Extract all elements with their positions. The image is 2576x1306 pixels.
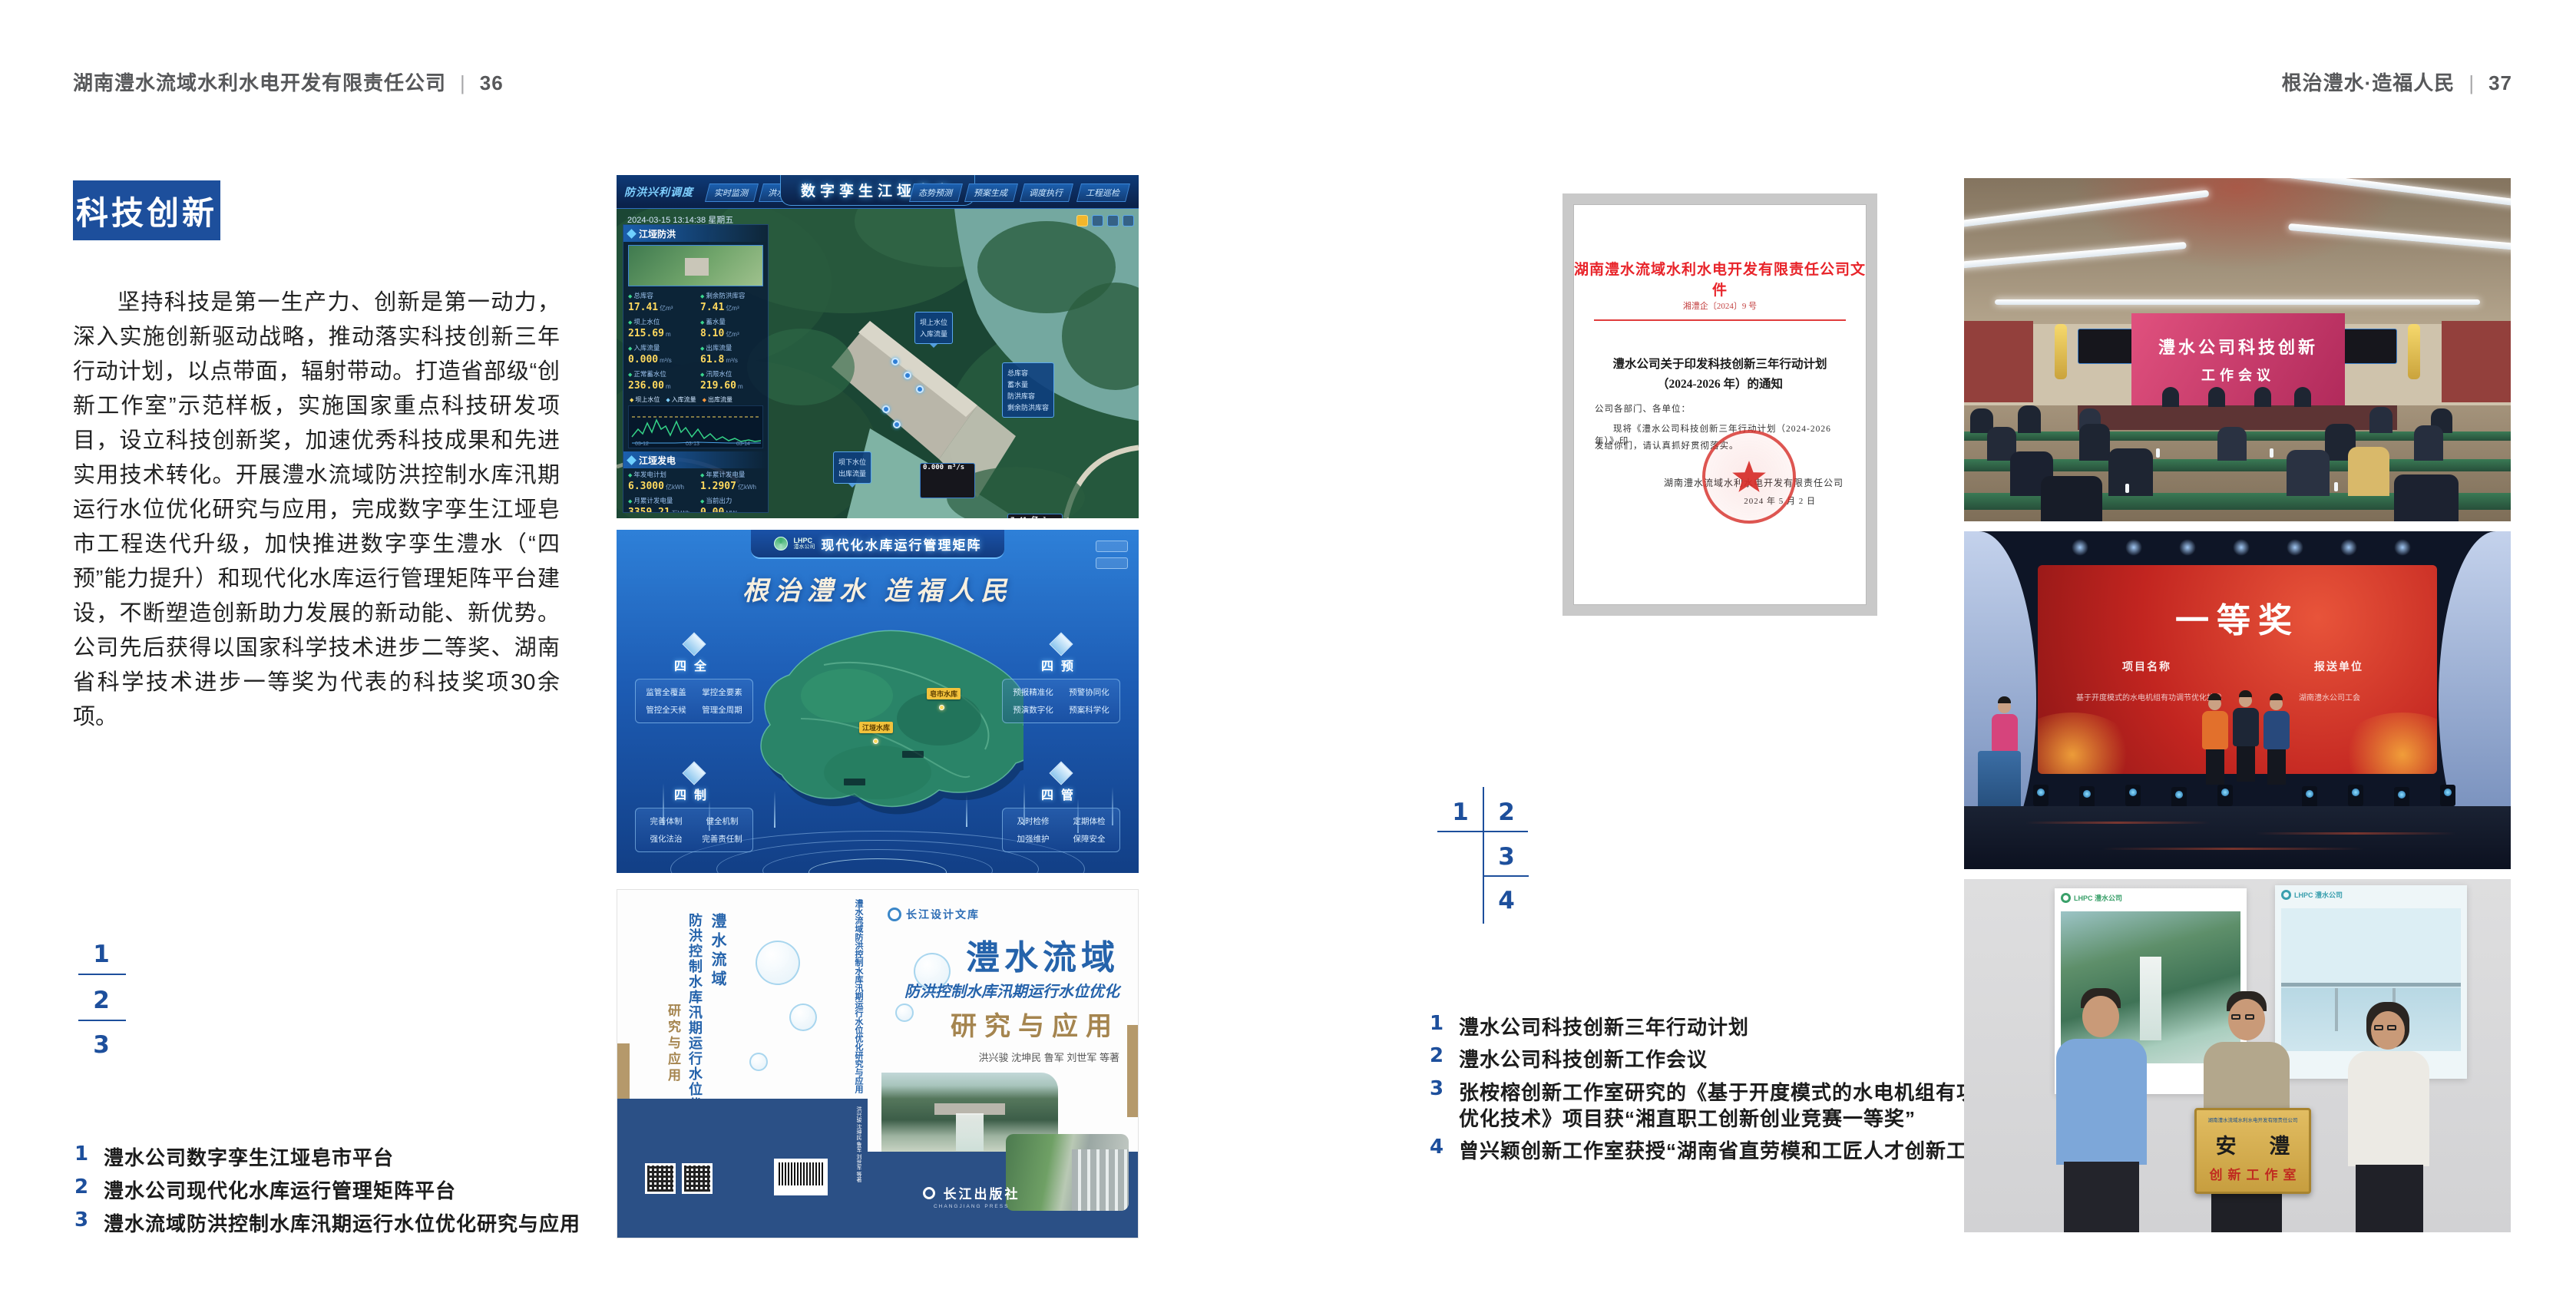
dashboard-top-bar: 防洪兴利调度 实时监测 洪水预报 防洪预警 数字孪生江垭皂市 态势预测 预案生成… bbox=[617, 175, 1139, 209]
lhpc-logo-icon bbox=[774, 537, 788, 551]
map-marker-small bbox=[844, 779, 865, 785]
award-col2-header: 报送单位 bbox=[2314, 659, 2363, 674]
back-title-main: 澧水流域 bbox=[706, 913, 729, 990]
official-seal bbox=[1702, 430, 1796, 524]
stat-label: 汛限水位 bbox=[700, 369, 763, 379]
figure-marker: 4 bbox=[1494, 887, 1519, 914]
poster-right: LHPC 澧水公司 bbox=[2275, 885, 2467, 1079]
bridge-shape bbox=[2281, 983, 2461, 987]
panel-icon bbox=[682, 761, 706, 785]
flood-panel-header: 江垭防洪 bbox=[623, 225, 768, 242]
map-marker-small bbox=[902, 751, 924, 758]
map-marker-dot bbox=[939, 705, 944, 710]
person-silhouette bbox=[2294, 387, 2311, 407]
tab-realtime-monitor: 实时监测 bbox=[705, 184, 759, 202]
waterfall-shape bbox=[2140, 957, 2161, 1040]
water-bottle bbox=[2334, 482, 2338, 491]
unit-marker-icon bbox=[916, 385, 924, 393]
flood-panel: 江垭防洪 总库容17.41亿m³ 剩余防洪库容7.41亿m³ 坝上水位215.6… bbox=[623, 224, 769, 513]
power-stats: 年发电计划6.3000亿kWh 年累计发电量1.2907亿kWh 月累计发电量3… bbox=[623, 468, 768, 513]
stat-unit: 亿m³ bbox=[726, 305, 739, 312]
stat-unit: 万kWh bbox=[672, 510, 690, 513]
tab-plan-generate: 预案生成 bbox=[964, 184, 1018, 202]
stat-value: 8.10 bbox=[700, 328, 724, 339]
x-tick: 03-12 bbox=[635, 441, 649, 447]
dashboard-brand: 防洪兴利调度 bbox=[624, 184, 693, 200]
divider bbox=[1483, 875, 1529, 877]
panel-icon bbox=[1049, 761, 1073, 785]
running-head-right: 根治澧水·造福人民|37 bbox=[2282, 68, 2512, 96]
lhpc-logo-icon bbox=[2061, 893, 2071, 903]
stat-label: 年累计发电量 bbox=[700, 470, 763, 479]
person-silhouette bbox=[2079, 424, 2110, 461]
page-number-left: 36 bbox=[480, 71, 504, 94]
document-title-line2: （2024-2026 年）的通知 bbox=[1573, 375, 1867, 392]
reservoir-info-tag: 总库容17.41 亿m³ 蓄水量8.19 亿m³ 防洪库容7.41 亿m³ 剩余… bbox=[1002, 362, 1054, 418]
chart-legend: 坝上水位 入库流量 出库流量 bbox=[623, 394, 768, 405]
panel-icon bbox=[627, 455, 637, 465]
unit-marker-icon bbox=[904, 372, 911, 379]
spine-title: 澧水流域防洪控制水库汛期运行水位优化研究与应用 bbox=[852, 899, 865, 1093]
stage-light bbox=[2033, 785, 2049, 806]
power-panel-header: 江垭发电 bbox=[623, 451, 768, 468]
caption-text: 澧水流域防洪控制水库汛期运行水位优化研究与应用 bbox=[104, 1208, 580, 1237]
stage-light bbox=[2217, 785, 2233, 806]
ceiling-red-glow bbox=[2073, 178, 2401, 270]
stat-unit: m bbox=[666, 331, 671, 338]
tab-situation-forecast: 态势预测 bbox=[909, 184, 963, 202]
divider bbox=[78, 1020, 126, 1021]
stat-value: 61.8 bbox=[700, 354, 724, 365]
water-level-chart: 03-12 03-13 03-14 bbox=[628, 405, 763, 448]
x-tick: 03-14 bbox=[736, 441, 750, 447]
series-logo: 长江设计文库 bbox=[888, 907, 980, 922]
caption-number: 4 bbox=[1430, 1136, 1443, 1159]
unit-marker-icon bbox=[882, 405, 890, 413]
person-silhouette bbox=[2108, 448, 2153, 496]
stat-value: 236.00 bbox=[628, 380, 664, 392]
award-col1-header: 项目名称 bbox=[2122, 659, 2171, 674]
stat-unit: m³/s bbox=[660, 357, 672, 364]
document-salutation: 公司各部门、各单位： bbox=[1595, 402, 1845, 415]
series-name: 长江设计文库 bbox=[906, 907, 980, 922]
stat-unit: 亿m³ bbox=[726, 331, 739, 338]
brand-name: 澧水公司 bbox=[794, 544, 815, 550]
front-title-sub: 防洪控制水库汛期运行水位优化 bbox=[904, 979, 1119, 1001]
plaque-subtitle: 创新工作室 bbox=[2197, 1164, 2309, 1183]
stat-label: 年发电计划 bbox=[628, 470, 691, 479]
person-silhouette bbox=[2287, 450, 2330, 496]
caption-number: 3 bbox=[74, 1208, 88, 1232]
power-panel-title: 江垭发电 bbox=[639, 454, 676, 467]
spine-authors: 洪兴骏 沈坤民 鲁军 刘世军 等著 bbox=[855, 1106, 862, 1182]
stat-label: 出库流量 bbox=[700, 343, 763, 352]
person-silhouette bbox=[2414, 425, 2443, 461]
photo-award-ceremony: 一等奖 项目名称 报送单位 基于开度模式的水电机组有功调节优化技术 湖南澧水公司… bbox=[1964, 531, 2511, 869]
dam-shape bbox=[685, 258, 709, 276]
divider bbox=[1483, 787, 1484, 924]
map-marker-zaoshi: 皂市水库 bbox=[927, 688, 961, 699]
figure-digital-twin-dashboard: 防洪兴利调度 实时监测 洪水预报 防洪预警 数字孪生江垭皂市 态势预测 预案生成… bbox=[617, 175, 1139, 518]
stat-value: 17.41 bbox=[628, 302, 658, 313]
brand-abbr: LHPC bbox=[794, 537, 815, 544]
stat-unit: 亿kWh bbox=[666, 484, 684, 491]
separator: | bbox=[460, 71, 466, 94]
glasses-icon bbox=[2231, 1014, 2240, 1020]
tab-project-inspect: 工程巡检 bbox=[1076, 184, 1130, 202]
divider bbox=[1437, 831, 1528, 832]
panel-siguan: 四管 及时检修定期体检 加强维护保障安全 bbox=[1002, 765, 1120, 852]
caption-text-wrap: 优化技术》项目获“湘直职工创新创业竞赛一等奖” bbox=[1459, 1103, 1916, 1132]
photo-studio-plaque: LHPC 澧水公司 LHPC 澧水公司 bbox=[1964, 879, 2511, 1232]
publisher-block: 长江出版社 CHANGJIANG PRESS bbox=[923, 1183, 1020, 1209]
stage-light bbox=[2302, 786, 2317, 808]
stat-unit: m bbox=[666, 383, 671, 390]
side-wall bbox=[1964, 321, 2033, 402]
flood-stats: 总库容17.41亿m³ 剩余防洪库容7.41亿m³ 坝上水位215.69m 蓄水… bbox=[623, 289, 768, 394]
map-marker-dot bbox=[873, 739, 878, 744]
document-red-rule bbox=[1594, 319, 1847, 321]
person-silhouette bbox=[2217, 427, 2247, 461]
stat-label: 蓄水量 bbox=[700, 317, 763, 326]
legend-item: 坝上水位 bbox=[630, 395, 660, 404]
spill-gates-shape bbox=[1072, 1149, 1129, 1211]
bubble-graphic bbox=[895, 1003, 914, 1022]
person-silhouette bbox=[2369, 407, 2392, 433]
front-authors: 洪兴骏 沈坤民 鲁军 刘世军 等著 bbox=[979, 1050, 1119, 1064]
wall-screen bbox=[2078, 329, 2133, 364]
panel-icon bbox=[627, 229, 637, 239]
front-title-tail: 研究与应用 bbox=[951, 1005, 1119, 1043]
qr-code bbox=[682, 1163, 713, 1194]
stage-light bbox=[2394, 787, 2409, 808]
figure-marker: 3 bbox=[89, 1031, 114, 1059]
map-marker-jiangya: 江垭水库 bbox=[859, 722, 893, 733]
stat-value: 219.60 bbox=[700, 380, 736, 392]
wall-screen bbox=[2342, 329, 2397, 364]
plaque-header: 湖南澧水流域水利水电开发有限责任公司 bbox=[2197, 1116, 2309, 1123]
person-silhouette bbox=[2394, 474, 2459, 521]
flood-panel-title: 江垭防洪 bbox=[639, 227, 676, 240]
stage-light bbox=[2440, 785, 2455, 806]
publisher-name: 长江出版社 bbox=[943, 1187, 1020, 1202]
magazine-spread: 湖南澧水流域水利水电开发有限责任公司|36 科技创新 坚持科技是第一生产力、创新… bbox=[0, 0, 2576, 1306]
x-tick: 03-13 bbox=[686, 441, 699, 447]
screen-text-line2: 工作会议 bbox=[2201, 365, 2275, 385]
expand-chip-icon bbox=[1096, 557, 1128, 569]
matrix-header: LHPC澧水公司 现代化水库运行管理矩阵 bbox=[751, 530, 1004, 559]
lhpc-logo-icon bbox=[2281, 890, 2291, 900]
upstream-level-tag: 坝上水位215.69 m 入库流量0.000 m³/s bbox=[914, 312, 953, 344]
stage-light bbox=[2079, 786, 2095, 808]
stat-label: 总库容 bbox=[628, 291, 691, 300]
studio-plaque-board: 湖南澧水流域水利水电开发有限责任公司 安 澧 创新工作室 bbox=[2194, 1108, 2311, 1194]
water-bottle bbox=[2125, 484, 2129, 493]
caption-text: 曾兴颖创新工作室获授“湖南省直劳模和工匠人才创新工作室” bbox=[1459, 1136, 2019, 1164]
figure-management-matrix: LHPC澧水公司 现代化水库运行管理矩阵 根治澧水 造福人民 四全 监管全覆盖掌… bbox=[617, 530, 1139, 873]
panel-siyu: 四预 预报精准化预警协同化 预演数字化预案科学化 bbox=[1002, 636, 1120, 723]
tab-dispatch-execute: 调度执行 bbox=[1020, 184, 1073, 202]
fullscreen-icon bbox=[1092, 215, 1103, 226]
unit-marker-icon bbox=[891, 358, 899, 365]
document-red-header: 湖南澧水流域水利水电开发有限责任公司文件 bbox=[1573, 258, 1867, 299]
person-silhouette bbox=[2162, 387, 2179, 407]
publisher-logo-icon bbox=[923, 1187, 935, 1199]
glasses-icon bbox=[2387, 1025, 2396, 1030]
downstream-level-tag: 坝下水位108.19 m 出库流量61.8 m³/s bbox=[833, 451, 871, 484]
user-icon bbox=[1076, 215, 1088, 226]
close-chip-icon bbox=[1096, 541, 1128, 552]
screen-text-line1: 澧水公司科技创新 bbox=[2158, 334, 2318, 359]
figure-marker: 1 bbox=[89, 941, 114, 968]
stage-light bbox=[2348, 785, 2363, 806]
bubble-graphic bbox=[749, 1053, 768, 1071]
reflective-floor bbox=[1964, 806, 2511, 869]
alert-icon bbox=[1123, 215, 1134, 226]
matrix-title: 现代化水库运行管理矩阵 bbox=[822, 534, 982, 554]
white-top bbox=[2348, 1051, 2429, 1166]
legend-item: 入库流量 bbox=[666, 395, 696, 404]
stat-label: 剩余防洪库容 bbox=[700, 291, 763, 300]
caption-number: 1 bbox=[1430, 1012, 1443, 1035]
divider bbox=[78, 974, 126, 975]
person-silhouette bbox=[2208, 387, 2225, 407]
panel-sizhi: 四制 完善体制健全机制 强化法治完善责任制 bbox=[635, 765, 753, 852]
stat-value: 6.3000 bbox=[628, 481, 664, 492]
caption-number: 2 bbox=[1430, 1044, 1443, 1067]
stat-label: 月累计发电量 bbox=[628, 496, 691, 505]
caption-text: 澧水公司数字孪生江垭皂市平台 bbox=[104, 1142, 394, 1171]
award-title: 一等奖 bbox=[2038, 593, 2437, 642]
barcode bbox=[774, 1159, 828, 1195]
body-paragraph: 坚持科技是第一生产力、创新是第一动力，深入实施创新驱动战略，推动落实科技创新三年… bbox=[73, 286, 560, 735]
motto: 根治澧水·造福人民 bbox=[2282, 71, 2455, 94]
stat-value: 0.000 bbox=[628, 354, 658, 365]
water-bottle bbox=[2156, 448, 2160, 458]
blue-polo bbox=[2056, 1039, 2147, 1165]
stat-label: 正常蓄水位 bbox=[628, 369, 691, 379]
stat-value: 7.41 bbox=[700, 302, 724, 313]
company-name: 湖南澧水流域水利水电开发有限责任公司 bbox=[73, 71, 446, 94]
seal-star-icon bbox=[1731, 459, 1767, 494]
location-icon bbox=[1107, 215, 1119, 226]
bubble-graphic bbox=[756, 941, 800, 985]
stat-unit: m bbox=[738, 383, 743, 390]
front-title-main: 澧水流域 bbox=[966, 930, 1119, 979]
figure-book-cover: 澧水流域 防洪控制水库汛期运行水位优化 研究与应用 澧水流域防洪控制水库汛期运行… bbox=[617, 889, 1139, 1238]
stat-label: 入库流量 bbox=[628, 343, 691, 352]
stage-light bbox=[2171, 787, 2187, 808]
series-logo-icon bbox=[888, 908, 901, 921]
caption-number: 2 bbox=[74, 1175, 88, 1199]
caption-text: 澧水公司科技创新工作会议 bbox=[1459, 1044, 1708, 1073]
section-badge: 科技创新 bbox=[73, 180, 220, 240]
caption-number: 1 bbox=[74, 1142, 88, 1165]
bubble-graphic bbox=[789, 1003, 817, 1031]
stat-label: 当前出力 bbox=[700, 496, 763, 505]
panel-icon bbox=[682, 632, 706, 656]
person-silhouette-yellow-coat bbox=[2348, 447, 2389, 496]
document-number: 湘澧企〔2024〕9 号 bbox=[1573, 299, 1867, 312]
plaque-name: 安 澧 bbox=[2197, 1129, 2309, 1159]
stage-light bbox=[2125, 785, 2141, 806]
caption-text: 澧水公司科技创新三年行动计划 bbox=[1459, 1012, 1749, 1040]
publisher-name-en: CHANGJIANG PRESS bbox=[923, 1204, 1020, 1209]
side-wall bbox=[2442, 321, 2511, 402]
stat-unit: 亿m³ bbox=[660, 305, 673, 312]
water-bottle bbox=[2270, 448, 2273, 458]
caption-number: 3 bbox=[1430, 1077, 1443, 1100]
dam-thumbnail bbox=[628, 245, 763, 286]
person-silhouette bbox=[2041, 476, 2102, 521]
figure-official-document: 湖南澧水流域水利水电开发有限责任公司文件 湘澧企〔2024〕9 号 澧水公司关于… bbox=[1562, 193, 1877, 616]
stat-value: 0.00 bbox=[700, 507, 724, 513]
wall-lamp bbox=[2055, 324, 2067, 379]
document-title-line1: 澧水公司关于印发科技创新三年行动计划 bbox=[1573, 355, 1867, 372]
back-title-tail: 研究与应用 bbox=[663, 1003, 683, 1084]
separator: | bbox=[2469, 71, 2475, 94]
figure-marker: 1 bbox=[1448, 798, 1473, 826]
figure-marker: 2 bbox=[89, 987, 114, 1014]
panel-siquan: 四全 监管全覆盖掌控全要素 管控全天候管理全周期 bbox=[635, 636, 753, 723]
podium bbox=[1978, 751, 2021, 806]
stat-label: 坝上水位 bbox=[628, 317, 691, 326]
stat-value: 3359.21 bbox=[628, 507, 670, 513]
cover-accent-block bbox=[1127, 1025, 1139, 1117]
person-silhouette bbox=[2018, 405, 2041, 433]
person-silhouette bbox=[2254, 387, 2271, 407]
photo-innovation-meeting: 澧水公司科技创新 工作会议 bbox=[1964, 178, 2511, 521]
figure-marker: 3 bbox=[1494, 843, 1519, 871]
stat-unit: 亿kWh bbox=[738, 484, 756, 491]
unit-marker-icon bbox=[893, 421, 901, 428]
legend-item: 出库流量 bbox=[703, 395, 732, 404]
matrix-slogan: 根治澧水 造福人民 bbox=[742, 570, 1014, 607]
spillway-shape bbox=[956, 1113, 984, 1151]
page-number-right: 37 bbox=[2488, 71, 2512, 94]
qr-code bbox=[645, 1163, 676, 1194]
stat-value: 215.69 bbox=[628, 328, 664, 339]
glasses-icon bbox=[2245, 1014, 2254, 1020]
award-project-name: 基于开度模式的水电机组有功调节优化技术 bbox=[2076, 691, 2222, 703]
panel-icon bbox=[1049, 632, 1073, 656]
glasses-icon bbox=[2374, 1025, 2383, 1030]
front-photo-dam-small bbox=[1006, 1134, 1129, 1211]
stat-unit: MW bbox=[726, 510, 736, 513]
running-head-left: 湖南澧水流域水利水电开发有限责任公司|36 bbox=[73, 68, 504, 96]
stat-unit: m³/s bbox=[726, 357, 738, 364]
award-submitting-unit: 湖南澧水公司工会 bbox=[2299, 691, 2360, 703]
caption-text: 澧水公司现代化水库运行管理矩阵平台 bbox=[104, 1175, 456, 1204]
stat-value: 1.2907 bbox=[700, 481, 736, 492]
caption-text: 张桉榕创新工作室研究的《基于开度模式的水电机组有功调节 bbox=[1459, 1077, 2019, 1106]
figure-marker: 2 bbox=[1494, 798, 1519, 826]
wall-lamp bbox=[2408, 324, 2420, 379]
